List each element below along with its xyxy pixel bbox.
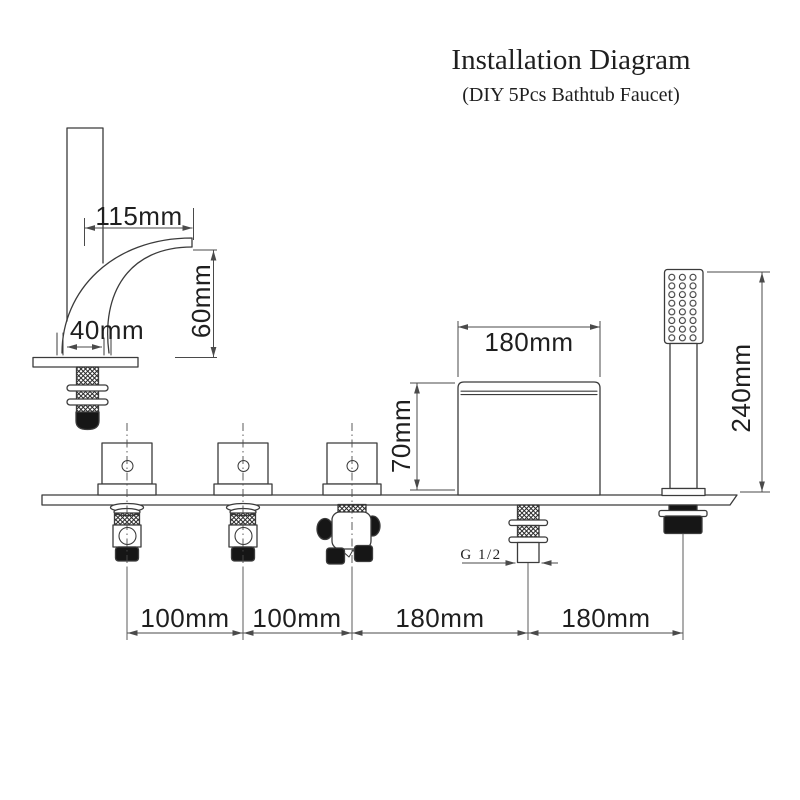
label-spacing-1: 100mm [140, 603, 229, 633]
spray-nozzle-grid [667, 273, 699, 342]
label-thread-size: G 1/2 [460, 547, 501, 563]
dim-body-height [410, 383, 455, 490]
label-spout-base-width: 40mm [70, 315, 144, 345]
hand-shower-handle [670, 344, 697, 489]
diverter-valve-body [317, 505, 380, 565]
page-title: Installation Diagram [451, 44, 691, 76]
label-spacing-3: 180mm [395, 603, 484, 633]
label-spacing-4: 180mm [561, 603, 650, 633]
hand-shower-mounting-nut [659, 505, 707, 534]
hand-shower [659, 270, 707, 534]
label-spout-height: 60mm [186, 264, 216, 338]
label-spacing-2: 100mm [252, 603, 341, 633]
installation-diagram-page: Installation Diagram (DIY 5Pcs Bathtub F… [0, 0, 800, 800]
label-body-height: 70mm [386, 399, 416, 473]
spout-mounting-shaft [67, 367, 108, 430]
installation-diagram: Installation Diagram (DIY 5Pcs Bathtub F… [0, 0, 800, 800]
page-subtitle: (DIY 5Pcs Bathtub Faucet) [462, 84, 680, 106]
drawing-linework [33, 128, 737, 564]
waterfall-spout-detail [33, 128, 192, 430]
label-body-width: 180mm [484, 327, 573, 357]
spout-body-mounting-shaft [509, 505, 548, 563]
main-spout-body [458, 382, 600, 563]
deck-plate [42, 495, 737, 505]
label-shower-height: 240mm [726, 343, 756, 432]
spout-base-plate [33, 358, 138, 368]
label-spout-reach: 115mm [95, 201, 182, 231]
hand-shower-holder-base [662, 489, 705, 496]
labels: Installation Diagram (DIY 5Pcs Bathtub F… [70, 44, 756, 633]
